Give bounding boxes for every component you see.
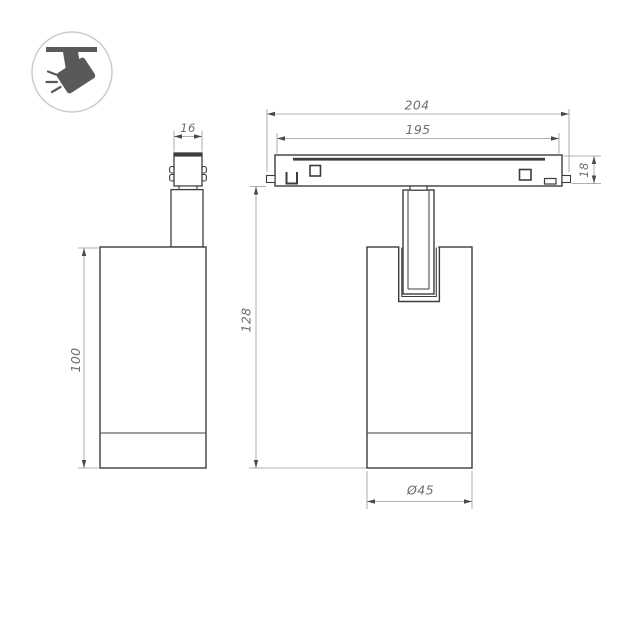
arrowhead bbox=[592, 176, 596, 184]
dim-label-128: 128 bbox=[239, 307, 254, 332]
track-slot-detail bbox=[545, 179, 557, 185]
side-view bbox=[100, 153, 206, 468]
arrowhead bbox=[592, 156, 596, 164]
dim-adapter-width: 16 bbox=[174, 121, 202, 152]
lamp-body-side bbox=[100, 247, 206, 468]
arrowhead bbox=[277, 136, 285, 140]
track-adapter-side bbox=[174, 153, 202, 186]
arrowhead bbox=[464, 499, 472, 503]
dim-label-195: 195 bbox=[405, 122, 430, 137]
dim-label-diameter-45: Ø45 bbox=[406, 483, 434, 498]
track-spotlight-icon bbox=[32, 32, 112, 112]
technical-drawing-canvas: 16 100 bbox=[0, 0, 623, 623]
dim-track-window-length: 195 bbox=[277, 122, 559, 154]
dim-label-16: 16 bbox=[180, 121, 195, 135]
arrowhead bbox=[82, 248, 86, 256]
stem-side bbox=[171, 190, 203, 247]
arrowhead bbox=[561, 112, 569, 116]
arrowhead bbox=[254, 187, 258, 195]
track-end-tab bbox=[267, 176, 276, 183]
arrowhead bbox=[551, 136, 559, 140]
dim-overall-height: 128 bbox=[239, 187, 367, 469]
track-magnet-strip bbox=[293, 158, 545, 161]
front-view bbox=[267, 155, 571, 468]
arrowhead bbox=[82, 460, 86, 468]
track-adapter-top-edge bbox=[174, 153, 202, 157]
dim-body-diameter: Ø45 bbox=[367, 471, 472, 509]
arrowhead bbox=[367, 499, 375, 503]
dim-label-100: 100 bbox=[68, 347, 83, 372]
track-contact-detail bbox=[310, 166, 321, 177]
dim-label-204: 204 bbox=[404, 98, 429, 113]
track-end-tab bbox=[562, 176, 571, 183]
stem-track-connector bbox=[410, 186, 427, 190]
dim-label-18: 18 bbox=[577, 162, 591, 177]
icon-track-bar bbox=[46, 47, 97, 52]
dim-body-height: 100 bbox=[68, 248, 99, 468]
arrowhead bbox=[254, 460, 258, 468]
track-contact-detail bbox=[520, 170, 532, 181]
arrowhead bbox=[267, 112, 275, 116]
